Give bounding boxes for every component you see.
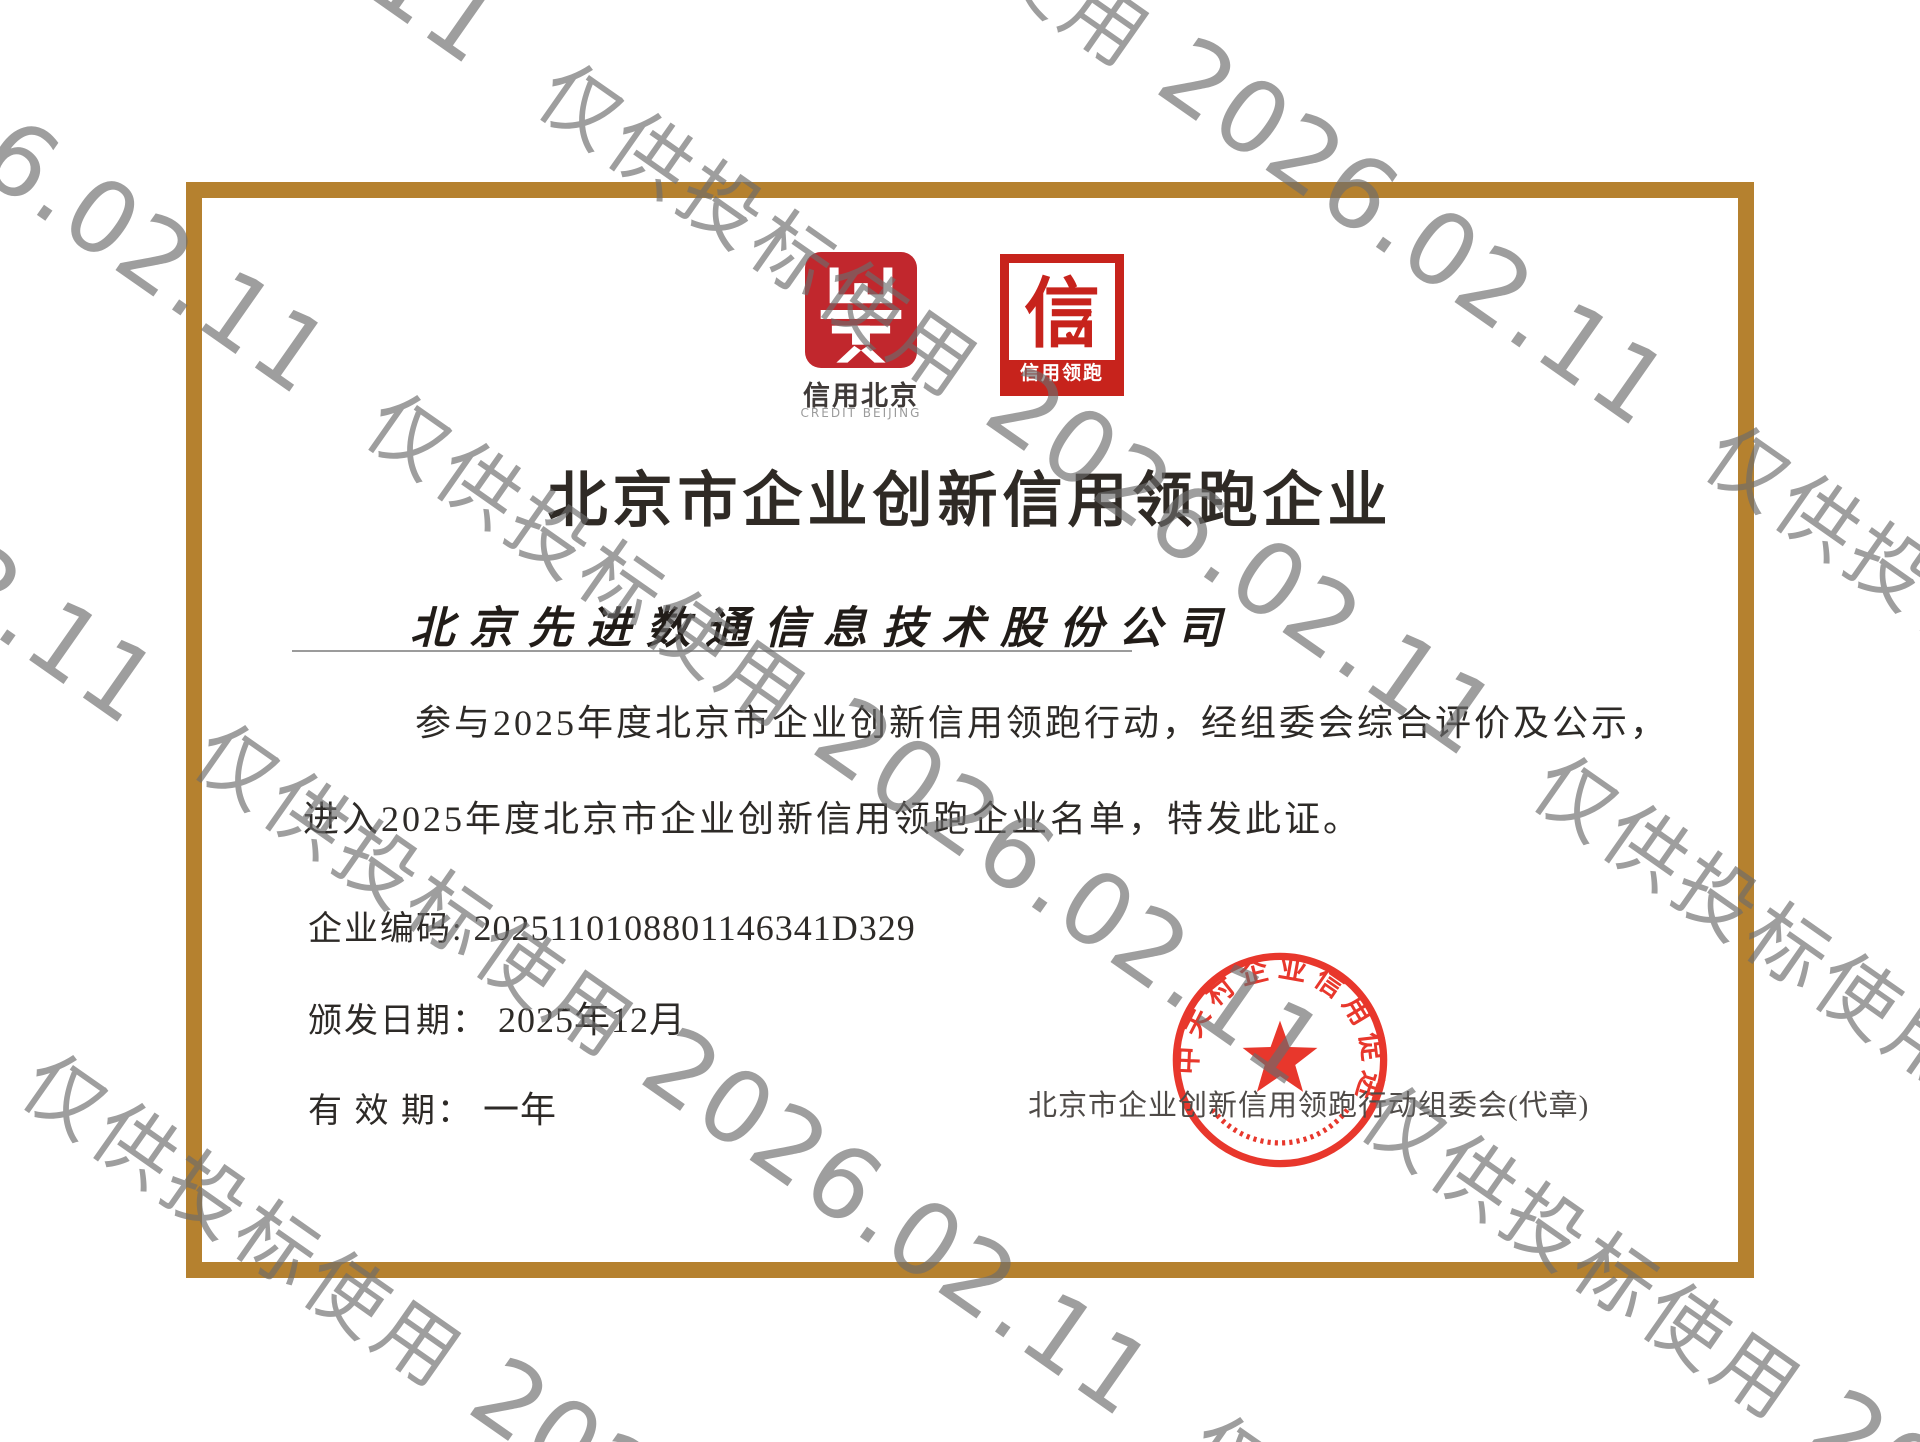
watermark-item: 仅供投标使用 2026.02.11 xyxy=(1169,1382,1920,1442)
validity-label: 有 效 期： xyxy=(308,1093,473,1130)
credit-leader-logo: 信 ✓ 信用领跑 xyxy=(1000,254,1124,396)
enterprise-code-value: 2025110108801146341D329 xyxy=(463,908,915,948)
watermark-item: 仅供投标使用 2026.02.11 xyxy=(0,0,180,748)
issue-date-value: 2025年12月 xyxy=(488,1000,686,1040)
credit-beijing-glyph-icon xyxy=(805,252,917,368)
field-issue-date: 颁发日期：2025年12月 xyxy=(308,991,686,1043)
credit-beijing-logo xyxy=(805,252,917,368)
certificate-title: 北京市企业创新信用领跑企业 xyxy=(186,452,1754,539)
company-underline xyxy=(292,650,1132,652)
credit-beijing-label-en: CREDIT BEIJING xyxy=(755,406,967,420)
body-line-1: 参与2025年度北京市企业创新信用领跑行动，经组委会综合评价及公示， xyxy=(415,694,1669,746)
company-name: 北京先进数通信息技术股份公司 xyxy=(410,592,1236,656)
checkmark-icon: ✓ xyxy=(1053,294,1109,365)
enterprise-code-label: 企业编码: xyxy=(308,911,463,948)
credit-leader-banner: 信用领跑 xyxy=(1009,360,1115,387)
validity-value: 一年 xyxy=(473,1090,557,1130)
field-enterprise-code: 企业编码:2025110108801146341D329 xyxy=(308,901,916,950)
issuer-line: 北京市企业创新信用领跑行动组委会(代章) xyxy=(1028,1082,1589,1124)
certificate-page: 信用北京 CREDIT BEIJING 信 ✓ 信用领跑 北京市企业创新信用领跑… xyxy=(0,0,1920,1442)
field-validity: 有 效 期：一年 xyxy=(308,1081,557,1133)
watermark-item: 仅供投标使用 2026.02.11 xyxy=(0,1350,831,1442)
watermark-item: 仅供投标使用 2026.02.11 xyxy=(0,0,524,88)
issue-date-label: 颁发日期： xyxy=(308,1003,488,1040)
watermark-item: 仅供投标使用 2026.02.11 xyxy=(0,328,8,1078)
official-seal: 中关村企业信用促进会 xyxy=(1166,946,1394,1174)
body-line-2: 进入2025年度北京市企业创新信用领跑企业名单，特发此证。 xyxy=(303,790,1362,842)
